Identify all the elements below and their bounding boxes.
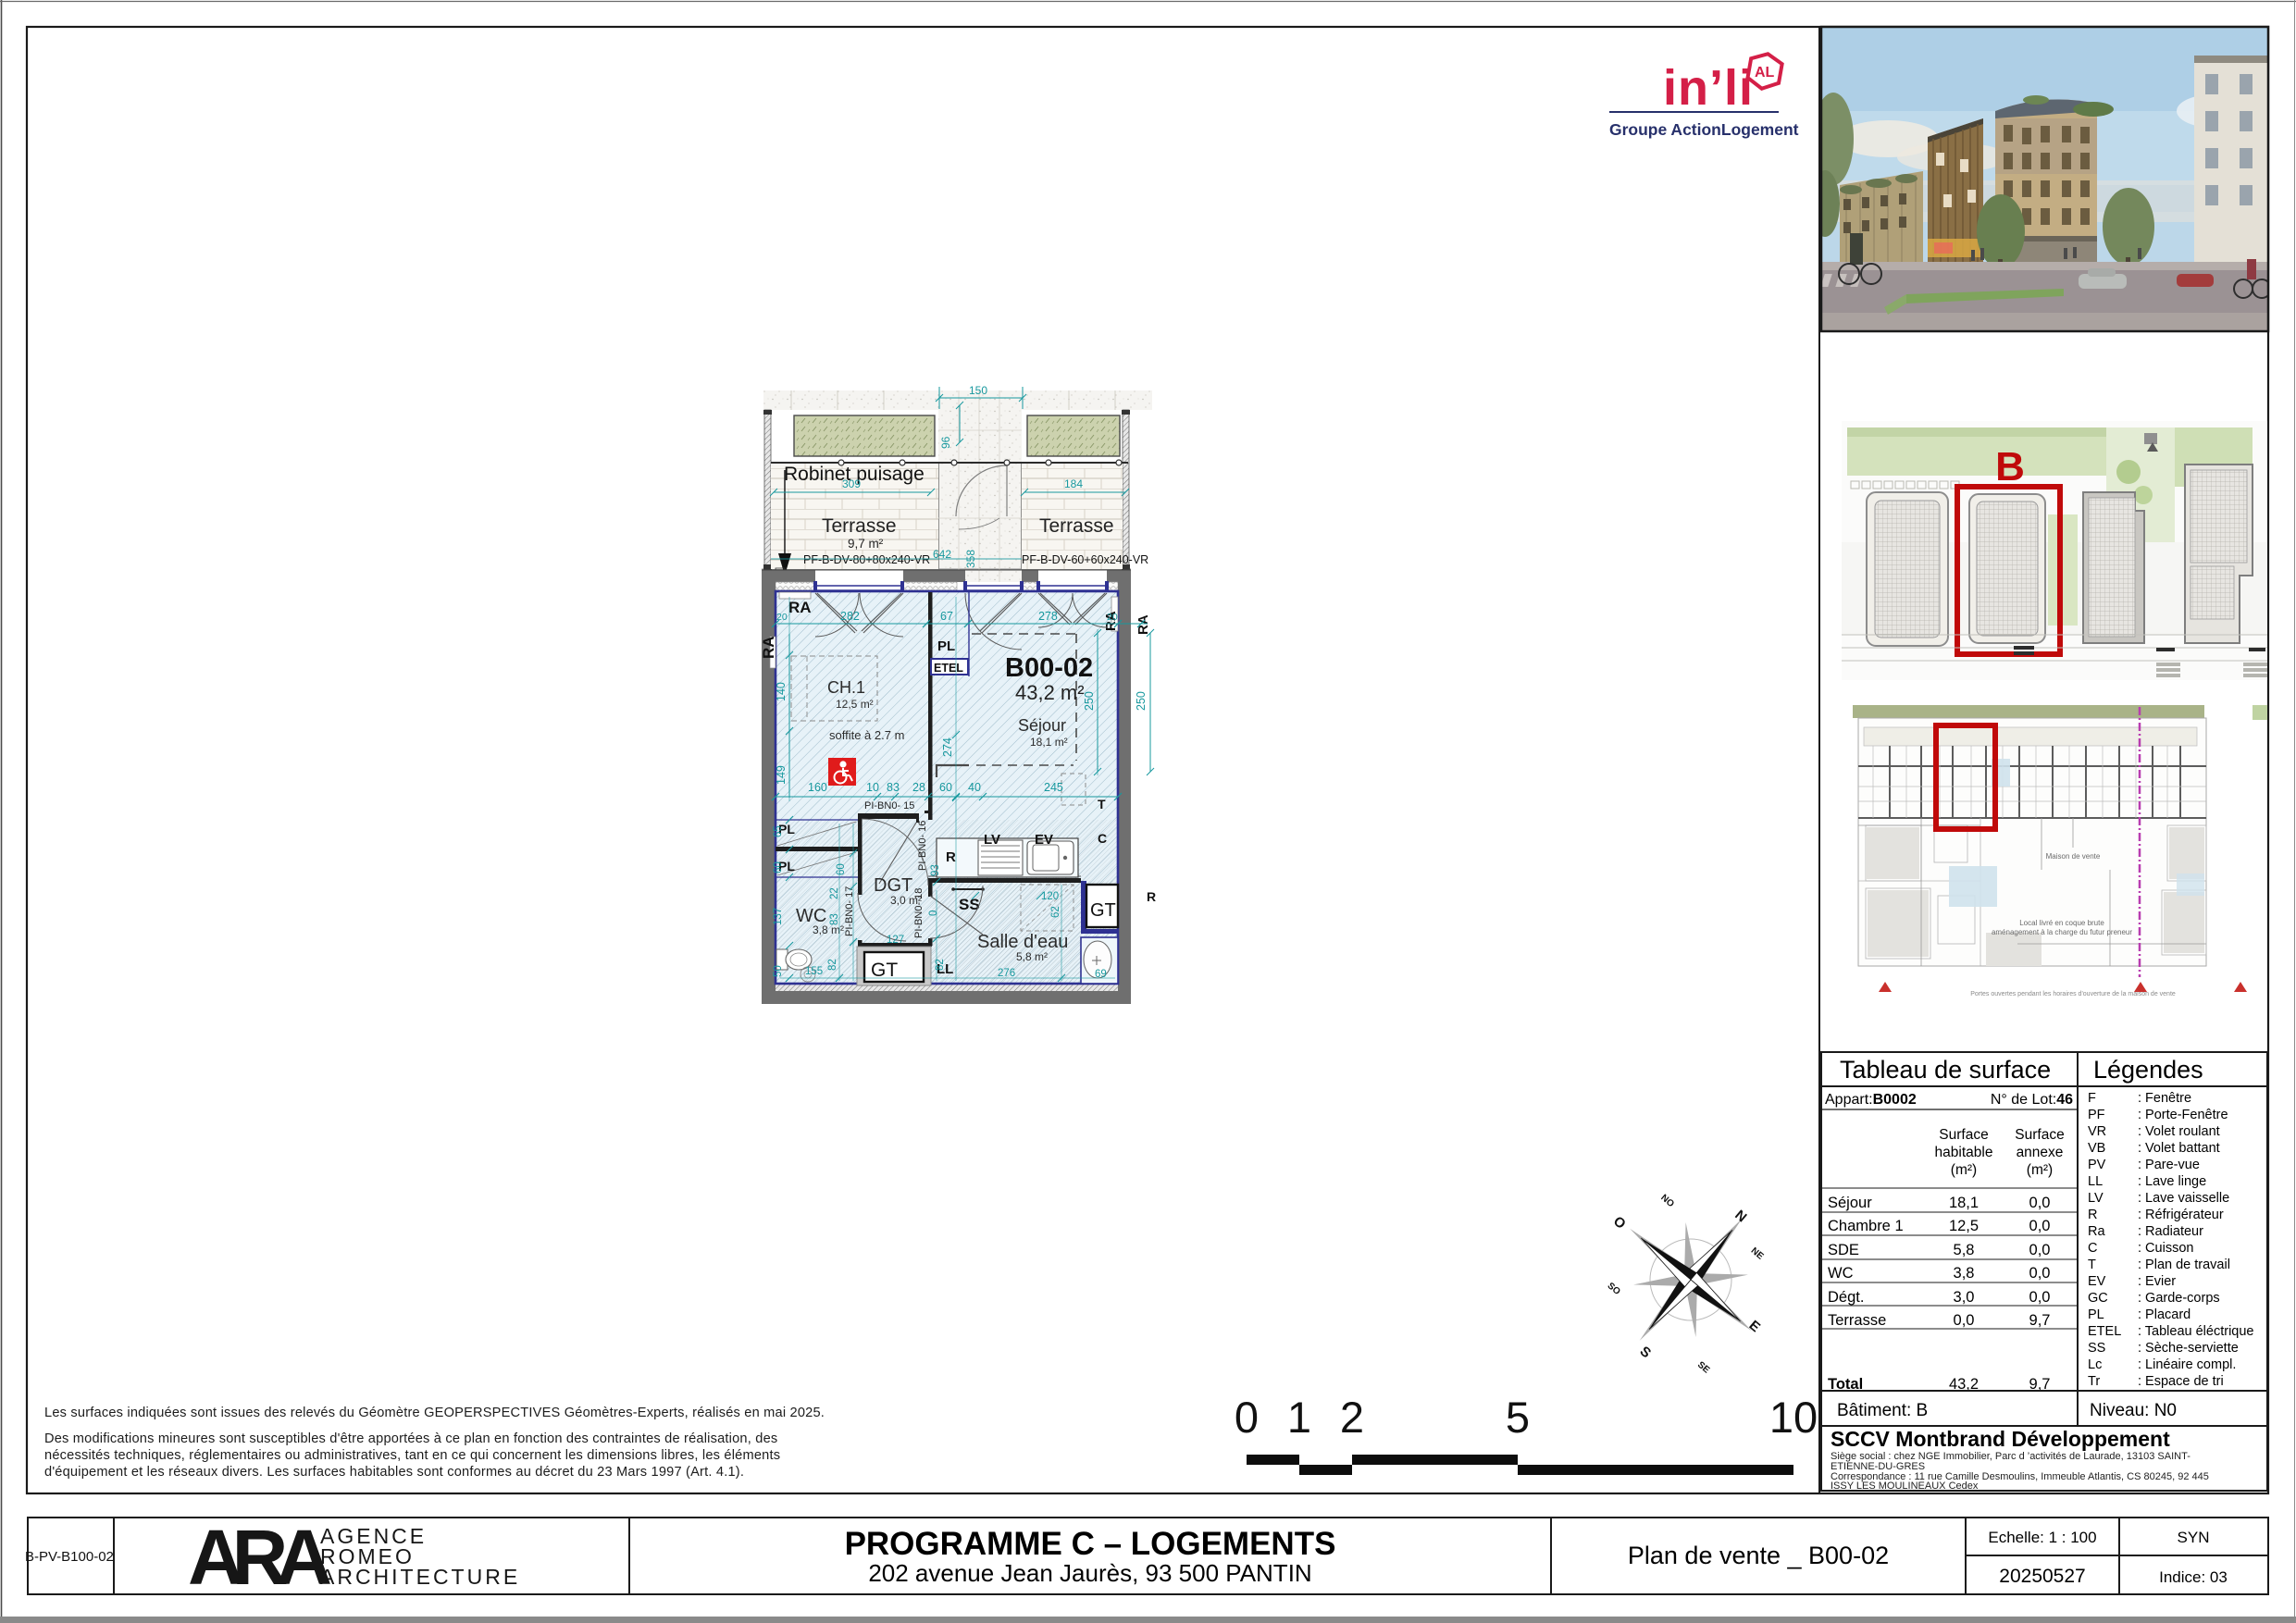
svg-text:5,8: 5,8 <box>1954 1242 1975 1258</box>
svg-text:GT: GT <box>871 960 898 981</box>
svg-text:LL: LL <box>2088 1174 2103 1189</box>
svg-text:Dégt.: Dégt. <box>1828 1289 1864 1306</box>
svg-text:278: 278 <box>1038 610 1058 623</box>
svg-text:LV: LV <box>984 832 1000 848</box>
svg-text:N° de Lot:46: N° de Lot:46 <box>1991 1092 2073 1108</box>
svg-text:0,0: 0,0 <box>2029 1195 2051 1211</box>
svg-text:EV: EV <box>2088 1274 2106 1289</box>
svg-text:RA: RA <box>1136 614 1151 635</box>
svg-text:: Fenêtre: : Fenêtre <box>2138 1091 2191 1106</box>
svg-text:T: T <box>1098 797 1106 811</box>
svg-text:22: 22 <box>829 887 840 899</box>
svg-text:RA: RA <box>760 636 777 659</box>
svg-text:Indice: 03: Indice: 03 <box>2159 1568 2228 1586</box>
svg-text:SS: SS <box>2088 1341 2105 1356</box>
svg-text:R: R <box>946 849 956 865</box>
svg-text:83: 83 <box>887 781 900 794</box>
svg-text:: Lave vaisselle: : Lave vaisselle <box>2138 1191 2229 1206</box>
svg-text:R: R <box>1147 889 1156 904</box>
svg-text:B-PV-B100-02: B-PV-B100-02 <box>25 1549 114 1565</box>
svg-text:Terrasse: Terrasse <box>822 515 897 537</box>
svg-text:Bâtiment: B: Bâtiment: B <box>1837 1401 1928 1420</box>
svg-text:140: 140 <box>775 682 788 701</box>
svg-text:PI-BN0- 18: PI-BN0- 18 <box>913 888 925 938</box>
svg-text:20: 20 <box>1107 612 1118 623</box>
svg-text:SYN: SYN <box>2178 1529 2210 1546</box>
svg-text:0: 0 <box>1235 1393 1259 1442</box>
svg-text:28: 28 <box>912 781 925 794</box>
svg-text:250: 250 <box>1083 691 1096 711</box>
svg-text:18,1: 18,1 <box>1949 1195 1979 1211</box>
svg-text:PF-B-DV-60+60x240-VR: PF-B-DV-60+60x240-VR <box>1022 553 1148 566</box>
svg-text:245: 245 <box>1044 781 1063 794</box>
svg-text:Echelle: 1 : 100: Echelle: 1 : 100 <box>1988 1529 2096 1546</box>
svg-text:274: 274 <box>941 737 954 757</box>
svg-text:nécessités techniques, régleme: nécessités techniques, réglementaires ou… <box>44 1448 780 1463</box>
svg-text:PI-BN0- 15: PI-BN0- 15 <box>864 800 914 811</box>
svg-text:B: B <box>1995 444 2025 489</box>
svg-text:AL: AL <box>1755 65 1775 81</box>
svg-text:50: 50 <box>773 965 784 977</box>
svg-text:67: 67 <box>940 610 953 623</box>
svg-text:0,0: 0,0 <box>2029 1265 2051 1282</box>
svg-text:GT: GT <box>1090 900 1116 921</box>
svg-text:0,0: 0,0 <box>2029 1289 2051 1306</box>
svg-text:(m²): (m²) <box>2027 1162 2053 1178</box>
svg-text:155: 155 <box>805 966 823 977</box>
svg-text:1: 1 <box>1287 1393 1311 1442</box>
svg-text:: Sèche-serviette: : Sèche-serviette <box>2138 1341 2239 1356</box>
svg-text:RA: RA <box>788 599 812 616</box>
svg-text:Surface: Surface <box>2015 1127 2064 1143</box>
svg-text:GC: GC <box>2088 1291 2108 1306</box>
svg-text:C: C <box>1098 831 1107 846</box>
svg-text:43,2 m²: 43,2 m² <box>1015 681 1085 704</box>
svg-text:5,8 m²: 5,8 m² <box>1016 950 1048 963</box>
svg-text:0: 0 <box>928 911 939 916</box>
svg-text:3,0: 3,0 <box>1954 1289 1975 1306</box>
svg-text:SDE: SDE <box>1828 1242 1859 1258</box>
svg-text:: Cuisson: : Cuisson <box>2138 1241 2193 1256</box>
svg-text:0,0: 0,0 <box>1954 1312 1975 1329</box>
svg-text:habitable: habitable <box>1935 1145 1993 1160</box>
svg-text:Portes ouvertes pendant les ho: Portes ouvertes pendant les horaires d'o… <box>1970 991 2176 997</box>
svg-text:C: C <box>2088 1241 2097 1256</box>
svg-text:Terrasse: Terrasse <box>1039 515 1114 537</box>
svg-text:Appart:B0002: Appart:B0002 <box>1825 1092 1917 1108</box>
svg-text:EV: EV <box>1035 832 1053 848</box>
svg-text:9,7 m²: 9,7 m² <box>848 537 884 551</box>
svg-text:137: 137 <box>773 908 784 925</box>
svg-text:2: 2 <box>1340 1393 1364 1442</box>
svg-text:Les surfaces indiquées sont is: Les surfaces indiquées sont issues des r… <box>44 1406 825 1420</box>
svg-text:Des modifications mineures son: Des modifications mineures sont suscepti… <box>44 1431 777 1446</box>
svg-text:160: 160 <box>808 781 827 794</box>
svg-text:VB: VB <box>2088 1141 2105 1156</box>
svg-text:: Tableau éléctrique: : Tableau éléctrique <box>2138 1324 2254 1339</box>
svg-text:309: 309 <box>842 477 861 490</box>
svg-text:: Volet roulant: : Volet roulant <box>2138 1124 2220 1139</box>
svg-text:Ra: Ra <box>2088 1224 2105 1239</box>
svg-text:0,0: 0,0 <box>2029 1218 2051 1234</box>
svg-text:: Porte-Fenêtre: : Porte-Fenêtre <box>2138 1108 2228 1122</box>
svg-text:202 avenue Jean Jaurès, 93 500: 202 avenue Jean Jaurès, 93 500 PANTIN <box>868 1559 1311 1587</box>
svg-text:10: 10 <box>866 781 879 794</box>
svg-text:0,0: 0,0 <box>2029 1242 2051 1258</box>
svg-text:250: 250 <box>1135 691 1148 711</box>
svg-text:Maison de vente: Maison de vente <box>2046 852 2101 861</box>
svg-text:WC: WC <box>1828 1265 1854 1282</box>
svg-text:Groupe ActionLogement: Groupe ActionLogement <box>1609 120 1799 139</box>
svg-text:Légendes: Légendes <box>2093 1056 2203 1084</box>
svg-text:93: 93 <box>930 864 941 876</box>
svg-text:ETEL: ETEL <box>2088 1324 2121 1339</box>
svg-text:: Réfrigérateur: : Réfrigérateur <box>2138 1208 2224 1222</box>
svg-text:T: T <box>2088 1258 2096 1272</box>
svg-text:184: 184 <box>1064 477 1083 490</box>
svg-text:Lc: Lc <box>2088 1357 2102 1372</box>
svg-text:: Lave linge: : Lave linge <box>2138 1174 2206 1189</box>
svg-text:150: 150 <box>969 384 987 397</box>
svg-text:12,5 m²: 12,5 m² <box>836 698 874 711</box>
svg-text:9,7: 9,7 <box>2029 1312 2051 1329</box>
svg-text:40: 40 <box>968 781 981 794</box>
svg-text:PROGRAMME C – LOGEMENTS: PROGRAMME C – LOGEMENTS <box>845 1526 1336 1562</box>
svg-text:PF: PF <box>2088 1108 2105 1122</box>
svg-text:PL: PL <box>2088 1307 2104 1322</box>
svg-text:282: 282 <box>840 610 860 623</box>
svg-text:: Plan de travail: : Plan de travail <box>2138 1258 2230 1272</box>
svg-text:5: 5 <box>1506 1393 1530 1442</box>
svg-text:: Radiateur: : Radiateur <box>2138 1224 2203 1239</box>
svg-text:10: 10 <box>1769 1393 1818 1442</box>
svg-text:60: 60 <box>836 863 847 875</box>
svg-text:20250527: 20250527 <box>1999 1566 2085 1587</box>
svg-text:Salle d'eau: Salle d'eau <box>977 932 1068 952</box>
svg-text:65: 65 <box>773 825 784 837</box>
svg-text:83: 83 <box>829 913 840 925</box>
svg-text:127: 127 <box>887 935 904 946</box>
svg-text:: Espace de tri: : Espace de tri <box>2138 1374 2224 1389</box>
svg-text:DGT: DGT <box>874 875 912 896</box>
svg-text:Niveau: N0: Niveau: N0 <box>2090 1401 2177 1420</box>
svg-text:Séjour: Séjour <box>1018 716 1066 735</box>
svg-text:PF-B-DV-80+80x240-VR: PF-B-DV-80+80x240-VR <box>803 553 930 566</box>
svg-text:69: 69 <box>1095 969 1107 980</box>
svg-text:aménagement à la charge du fut: aménagement à la charge du futur preneur <box>1992 928 2132 936</box>
svg-text:Tableau de surface: Tableau de surface <box>1840 1056 2051 1084</box>
svg-text:3,8: 3,8 <box>1954 1265 1975 1282</box>
svg-text:Chambre 1: Chambre 1 <box>1828 1218 1904 1234</box>
svg-text:annexe: annexe <box>2017 1145 2064 1160</box>
svg-text:Séjour: Séjour <box>1828 1195 1872 1211</box>
svg-text:Terrasse: Terrasse <box>1828 1312 1886 1329</box>
svg-text:149: 149 <box>775 765 788 785</box>
svg-text:: Pare-vue: : Pare-vue <box>2138 1158 2200 1172</box>
svg-text:in’li: in’li <box>1663 60 1754 116</box>
svg-text:VR: VR <box>2088 1124 2106 1139</box>
svg-text:ETEL: ETEL <box>934 662 963 675</box>
svg-text:62: 62 <box>1050 906 1061 918</box>
svg-text:PI-BN0- 16: PI-BN0- 16 <box>917 821 928 871</box>
svg-text:Plan de vente _ B00-02: Plan de vente _ B00-02 <box>1628 1542 1889 1569</box>
svg-text:R: R <box>2088 1208 2097 1222</box>
svg-text:d'équipement et les réseaux di: d'équipement et les réseaux divers. Les … <box>44 1465 744 1480</box>
svg-text:ARCHITECTURE: ARCHITECTURE <box>320 1565 520 1589</box>
svg-text:: Linéaire compl.: : Linéaire compl. <box>2138 1357 2236 1372</box>
svg-text:soffite à 2.7 m: soffite à 2.7 m <box>829 728 904 742</box>
svg-text:B00-02: B00-02 <box>1005 653 1093 683</box>
svg-text:60: 60 <box>773 861 784 873</box>
svg-text:82: 82 <box>935 959 946 971</box>
svg-text:(m²): (m²) <box>1951 1162 1977 1178</box>
svg-text:60: 60 <box>939 781 952 794</box>
svg-text:82: 82 <box>827 959 838 971</box>
svg-text:PV: PV <box>2088 1158 2106 1172</box>
svg-text:Local livré en coque brute: Local livré en coque brute <box>2019 919 2104 927</box>
svg-text:Surface: Surface <box>1939 1127 1988 1143</box>
svg-text:PL: PL <box>937 638 955 654</box>
svg-text:18,1 m²: 18,1 m² <box>1030 736 1068 749</box>
svg-text:: Evier: : Evier <box>2138 1274 2176 1289</box>
svg-text:: Garde-corps: : Garde-corps <box>2138 1291 2220 1306</box>
svg-text:F: F <box>2088 1091 2096 1106</box>
svg-text:ARA: ARA <box>188 1514 330 1601</box>
svg-text:96: 96 <box>939 436 952 449</box>
svg-text:SCCV Montbrand Développement: SCCV Montbrand Développement <box>1831 1427 2170 1451</box>
svg-text:12,5: 12,5 <box>1949 1218 1979 1234</box>
svg-text:LV: LV <box>2088 1191 2104 1206</box>
svg-text:: Placard: : Placard <box>2138 1307 2191 1322</box>
svg-text:CH.1: CH.1 <box>827 678 865 697</box>
svg-text:Tr: Tr <box>2088 1374 2100 1389</box>
svg-text:: Volet battant: : Volet battant <box>2138 1141 2220 1156</box>
svg-text:ISSY LES MOULINEAUX Cedex: ISSY LES MOULINEAUX Cedex <box>1831 1481 1979 1492</box>
svg-text:276: 276 <box>998 968 1015 979</box>
